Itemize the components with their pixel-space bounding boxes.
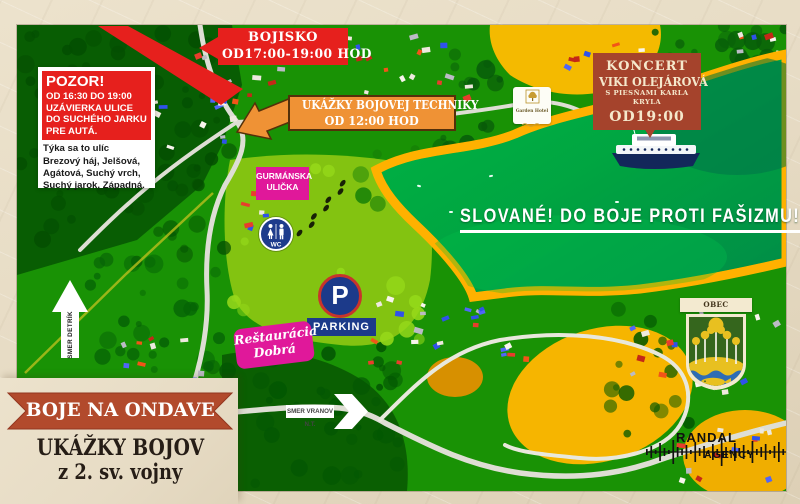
gurmanska-line1: GURMÁNSKA (256, 171, 309, 182)
restroom-icon: WC (261, 219, 291, 249)
bojisko-callout: BOJISKO OD17:00-19:00 HOD (218, 28, 348, 65)
pozor-note-line: Agátová, Suchý vrch, (43, 168, 151, 180)
pozor-notice: POZOR! OD 16:30 DO 19:00 UZÁVIERKA ULICE… (38, 67, 155, 188)
gurmanska-line2: ULIČKA (256, 182, 309, 193)
wc-text: WC (271, 242, 282, 249)
gurmanska-label: GURMÁNSKA ULIČKA (256, 167, 309, 200)
pozor-note-line: Brezový háj, Jelšová, (43, 156, 151, 168)
script-flourish-icon (521, 122, 543, 127)
coat-of-arms (684, 312, 748, 392)
event-poster: BOJISKO OD17:00-19:00 HOD UKÁŽKY BOJOVEJ… (0, 0, 800, 504)
event-subtitle-line2: z 2. sv. vojny (10, 459, 230, 484)
bojisko-time: OD17:00-19:00 HOD (222, 46, 372, 63)
pozor-note: Týka sa to ulíc Brezový háj, Jelšová, Ag… (38, 140, 155, 192)
slogan-text: SLOVANÉ! DO BOJE PROTI FAŠIZMU! (460, 206, 800, 233)
parking-sign: P (318, 274, 362, 318)
technika-title: UKÁŽKY BOJOVEJ TECHNIKY (302, 97, 479, 113)
event-subtitle-line1: UKÁŽKY BOJOV (10, 435, 230, 461)
parking-label: PARKING (307, 318, 376, 336)
wc-sign: WC (259, 217, 293, 251)
garden-hotel-sign: Garden Hotel (513, 87, 551, 124)
koncert-subtitle: S PIESŇAMI KARLA KRYLA (593, 89, 701, 107)
koncert-callout: KONCERT VIKI OLEJÁROVÁ S PIESŇAMI KARLA … (593, 53, 701, 130)
direction-detrik-sign: SMER DETRÍK (61, 311, 79, 358)
pozor-title: POZOR! (46, 73, 147, 91)
garden-hotel-text: Garden Hotel (513, 109, 551, 114)
tree-icon (525, 89, 540, 104)
pozor-line: DO SUCHÉHO JARKU (46, 114, 147, 126)
koncert-title: KONCERT (593, 59, 701, 74)
pozor-line: OD 16:30 DO 19:00 (46, 91, 147, 103)
pozor-red-box: POZOR! OD 16:30 DO 19:00 UZÁVIERKA ULICE… (42, 71, 151, 140)
field-small (427, 357, 483, 397)
direction-detrik-text: SMER DETRÍK (67, 311, 74, 359)
slogan-banner: SLOVANÉ! DO BOJE PROTI FAŠIZMU! (460, 206, 800, 233)
technika-callout: UKÁŽKY BOJOVEJ TECHNIKY OD 12:00 HOD (288, 95, 456, 131)
parking-letter: P (331, 280, 348, 310)
pozor-note-line: Týka sa to ulíc (43, 143, 151, 155)
event-title: BOJE NA ONDAVE (8, 399, 232, 421)
pozor-note-line: Suchý jarok, Západná. (43, 180, 151, 192)
agency-subname: AGENCY (704, 449, 755, 461)
municipality-name: OBEC KVAKOVCE (680, 298, 752, 312)
direction-vranov-sign: SMER VRANOV N.T. (286, 405, 334, 418)
pozor-line: UZÁVIERKA ULICE (46, 103, 147, 115)
koncert-time: OD19:00 (593, 109, 701, 126)
koncert-artist: VIKI OLEJÁROVÁ (599, 74, 708, 89)
pozor-line: PRE AUTÁ. (46, 126, 147, 138)
agency-name: RANDAL (676, 430, 737, 445)
technika-time: OD 12:00 HOD (325, 113, 419, 129)
bojisko-title: BOJISKO (218, 29, 348, 46)
